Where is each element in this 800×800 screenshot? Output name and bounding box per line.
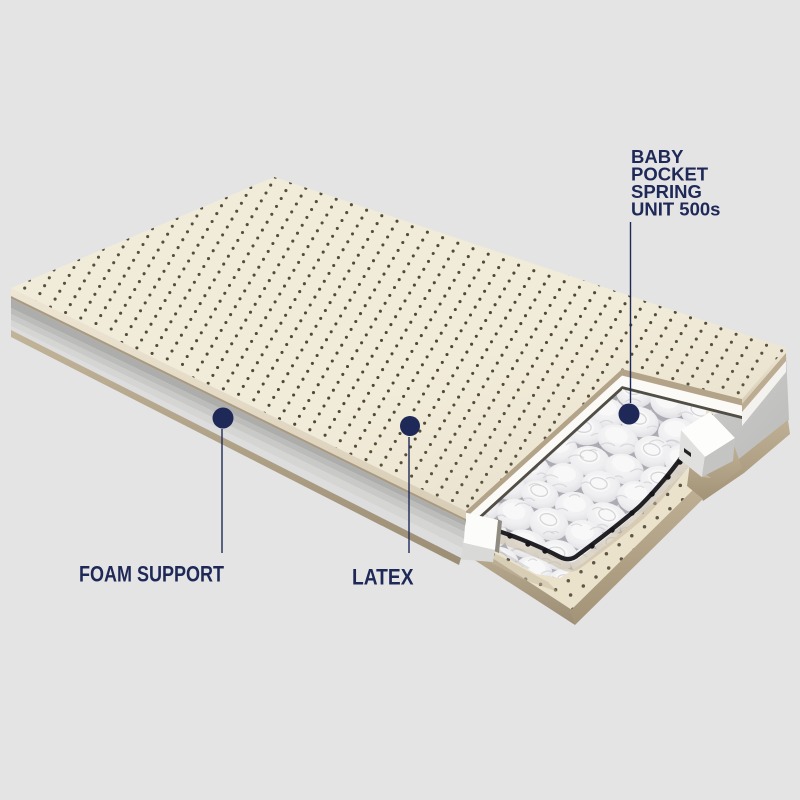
svg-text:FOAM SUPPORT: FOAM SUPPORT [79, 562, 224, 587]
svg-text:LATEX: LATEX [352, 565, 414, 590]
svg-text:UNIT 500s: UNIT 500s [631, 199, 720, 220]
